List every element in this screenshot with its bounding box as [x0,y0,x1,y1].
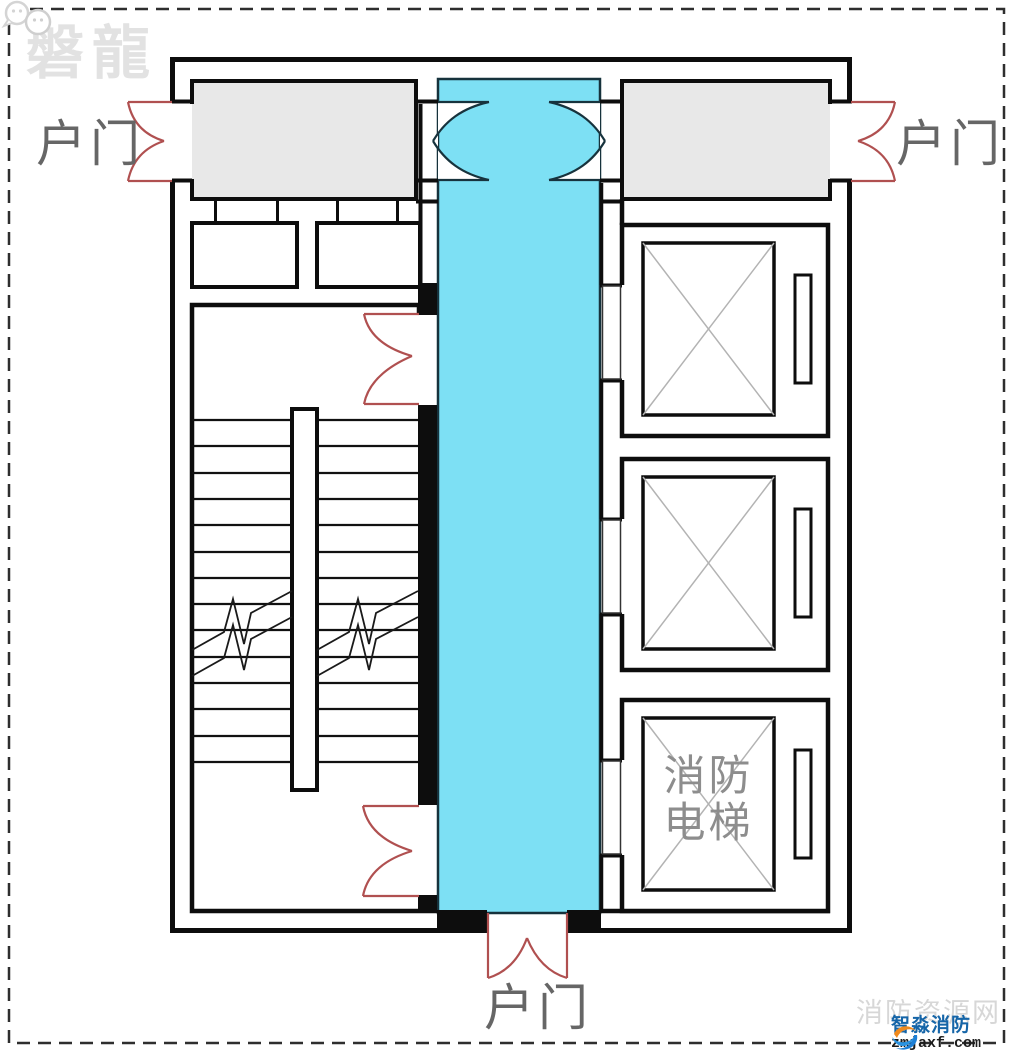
wechat-icon [0,0,60,36]
counterweight [795,750,811,858]
door-label-right: 户门 [896,104,1004,176]
apartment-room-top-left [192,79,416,199]
fire-elevator-label-line2: 电梯 [663,799,753,846]
door-swing-stair [364,314,419,404]
door-label-bottom: 户门 [484,968,592,1040]
floor-plan-drawing [0,0,1013,1052]
stair-divider-wall [292,409,317,790]
brand-logo-block: 智淼消防 zmjaxf.com [889,1016,981,1052]
floor-plan-page: 磐龍 户门 户门 户门 消防 电梯 消防资源网 智淼消防 zmjaxf.com [0,0,1013,1052]
zhimiao-swoosh-icon [889,1022,921,1052]
fire-elevator-label-line1: 消防 [663,752,753,799]
door-swing-right [851,102,895,181]
fire-elevator-label: 消防 电梯 [648,752,769,846]
corridor-left-wall [418,104,437,913]
corridor-front-room [438,79,600,913]
elevator-door-recess [603,520,621,613]
door-label-left: 户门 [36,104,144,176]
elevator-door-recess [603,761,621,854]
apartment-room-top-right [622,79,830,199]
counterweight [795,509,811,617]
door-swing-lower-left [363,806,419,896]
elevator-shaft-1 [603,225,829,436]
elevator-door-recess [603,286,621,379]
counterweight [795,275,811,383]
elevator-shaft-2 [603,459,829,670]
